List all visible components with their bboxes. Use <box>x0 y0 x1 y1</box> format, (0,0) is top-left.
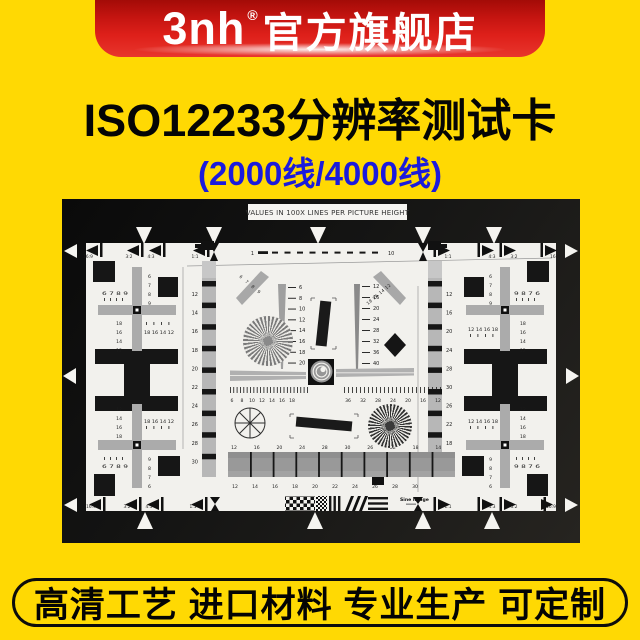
svg-text:1: 1 <box>251 251 254 257</box>
svg-text:32: 32 <box>373 339 379 345</box>
product-subtitle: (2000线/4000线) <box>0 147 640 195</box>
svg-text:3:2: 3:2 <box>126 254 133 260</box>
svg-text:24: 24 <box>373 317 379 323</box>
svg-text:6: 6 <box>231 398 234 404</box>
svg-text:14: 14 <box>252 484 258 490</box>
svg-text:28: 28 <box>322 445 328 451</box>
iso12233-test-chart: VALUES IN 100X LINES PER PICTURE HEIGHT … <box>62 199 580 543</box>
svg-text:6: 6 <box>299 285 302 291</box>
svg-text:16: 16 <box>299 339 305 345</box>
svg-text:18: 18 <box>192 348 198 354</box>
svg-text:18: 18 <box>413 445 419 451</box>
svg-text:6: 6 <box>489 484 492 490</box>
svg-text:18: 18 <box>289 398 295 404</box>
svg-text:8: 8 <box>299 296 302 302</box>
siemens-star-dark <box>368 404 412 448</box>
svg-text:22: 22 <box>332 484 338 490</box>
svg-text:12: 12 <box>299 317 305 323</box>
svg-text:30: 30 <box>345 445 351 451</box>
svg-text:8: 8 <box>489 292 492 298</box>
svg-text:8: 8 <box>148 292 151 298</box>
product-image-page: { "header": { "brand": "3nh", "registere… <box>0 0 640 640</box>
svg-text:12 14 16 18: 12 14 16 18 <box>468 327 498 333</box>
svg-text:10: 10 <box>388 251 394 257</box>
svg-text:14: 14 <box>116 416 122 422</box>
svg-text:14: 14 <box>299 328 305 334</box>
svg-text:16: 16 <box>373 295 379 301</box>
svg-text:40: 40 <box>373 361 379 367</box>
svg-text:30: 30 <box>446 385 452 391</box>
svg-text:12: 12 <box>520 348 526 354</box>
svg-text:20: 20 <box>373 306 379 312</box>
svg-text:12: 12 <box>116 348 122 354</box>
svg-text:16: 16 <box>520 425 526 431</box>
svg-text:16: 16 <box>116 425 122 431</box>
svg-text:22: 22 <box>446 422 452 428</box>
chart-heading: VALUES IN 100X LINES PER PICTURE HEIGHT <box>246 204 410 220</box>
svg-text:20: 20 <box>312 484 318 490</box>
svg-text:1:1: 1:1 <box>445 254 452 260</box>
svg-text:6: 6 <box>148 484 151 490</box>
svg-text:VALUES IN 100X LINES PER PICTU: VALUES IN 100X LINES PER PICTURE HEIGHT <box>246 209 410 217</box>
svg-text:10: 10 <box>249 398 255 404</box>
siemens-star-light <box>243 316 293 366</box>
svg-text:26: 26 <box>446 404 452 410</box>
svg-text:36: 36 <box>373 350 379 356</box>
svg-text:12: 12 <box>232 484 238 490</box>
svg-text:24: 24 <box>192 404 198 410</box>
svg-text:7: 7 <box>489 283 492 289</box>
svg-text:22: 22 <box>192 385 198 391</box>
svg-text:16: 16 <box>116 330 122 336</box>
svg-text:36: 36 <box>345 398 351 404</box>
registered-trademark-icon: ® <box>247 0 257 23</box>
svg-text:14: 14 <box>520 416 526 422</box>
svg-text:12 14 16 18: 12 14 16 18 <box>468 419 498 425</box>
svg-text:32: 32 <box>360 398 366 404</box>
svg-text:12: 12 <box>373 284 379 290</box>
svg-text:12: 12 <box>231 445 237 451</box>
svg-text:9: 9 <box>148 457 151 463</box>
svg-text:28: 28 <box>373 328 379 334</box>
svg-text:18: 18 <box>116 321 122 327</box>
svg-text:18 16 14 12: 18 16 14 12 <box>144 330 174 336</box>
svg-text:14: 14 <box>192 311 198 317</box>
svg-text:30: 30 <box>192 459 198 465</box>
svg-text:8: 8 <box>241 398 244 404</box>
svg-text:4:3: 4:3 <box>148 254 155 260</box>
svg-text:28: 28 <box>375 398 381 404</box>
spoked-wheel <box>235 408 265 438</box>
svg-text:6 7 8 9: 6 7 8 9 <box>102 464 128 470</box>
store-banner: 3nh ® 官方旗舰店 <box>95 0 545 57</box>
test-chart-graphic: VALUES IN 100X LINES PER PICTURE HEIGHT … <box>62 199 580 543</box>
svg-text:24: 24 <box>446 348 452 354</box>
slogan-banner: 高清工艺 进口材料 专业生产 可定制 <box>12 578 628 627</box>
svg-text:14: 14 <box>116 339 122 345</box>
svg-text:12: 12 <box>435 398 441 404</box>
svg-text:9: 9 <box>489 457 492 463</box>
svg-text:1:1: 1:1 <box>192 254 199 260</box>
svg-text:18: 18 <box>520 434 526 440</box>
svg-text:10: 10 <box>299 307 305 313</box>
center-focus-target <box>308 359 334 385</box>
svg-text:16:9: 16:9 <box>83 254 93 260</box>
svg-text:6 7 8 9: 6 7 8 9 <box>102 291 128 297</box>
svg-text:9: 9 <box>148 301 151 307</box>
svg-text:18: 18 <box>292 484 298 490</box>
svg-text:16: 16 <box>192 329 198 335</box>
svg-text:26: 26 <box>192 422 198 428</box>
svg-text:16: 16 <box>254 445 260 451</box>
svg-text:28: 28 <box>446 366 452 372</box>
svg-text:26: 26 <box>372 484 378 490</box>
product-title: ISO12233分辨率测试卡 <box>0 84 640 149</box>
svg-text:16: 16 <box>279 398 285 404</box>
svg-text:24: 24 <box>352 484 358 490</box>
svg-text:20: 20 <box>299 361 305 367</box>
svg-text:8: 8 <box>489 466 492 472</box>
svg-text:16: 16 <box>272 484 278 490</box>
svg-text:4:3: 4:3 <box>489 254 496 260</box>
svg-text:18: 18 <box>446 441 452 447</box>
svg-text:18: 18 <box>299 350 305 356</box>
svg-text:6: 6 <box>489 274 492 280</box>
svg-text:12: 12 <box>116 407 122 413</box>
svg-text:18: 18 <box>520 321 526 327</box>
svg-text:20: 20 <box>405 398 411 404</box>
svg-text:18: 18 <box>116 434 122 440</box>
svg-text:3:2: 3:2 <box>511 254 518 260</box>
svg-text:6: 6 <box>148 274 151 280</box>
svg-text:26: 26 <box>367 445 373 451</box>
svg-text:9: 9 <box>489 301 492 307</box>
svg-text:16:9: 16:9 <box>550 254 560 260</box>
svg-text:12: 12 <box>259 398 265 404</box>
svg-text:12: 12 <box>446 292 452 298</box>
svg-text:14: 14 <box>435 445 441 451</box>
black-nub <box>372 477 384 485</box>
svg-text:28: 28 <box>392 484 398 490</box>
svg-text:20: 20 <box>192 366 198 372</box>
svg-text:7: 7 <box>148 283 151 289</box>
svg-text:7: 7 <box>148 475 151 481</box>
svg-text:14: 14 <box>269 398 275 404</box>
svg-text:16: 16 <box>446 311 452 317</box>
svg-text:18 16 14 12: 18 16 14 12 <box>144 419 174 425</box>
svg-text:16: 16 <box>520 330 526 336</box>
svg-text:24: 24 <box>299 445 305 451</box>
svg-text:7: 7 <box>489 475 492 481</box>
svg-text:9 8 7 6: 9 8 7 6 <box>514 464 540 470</box>
svg-text:8: 8 <box>148 466 151 472</box>
svg-text:20: 20 <box>446 329 452 335</box>
brand-logo: 3nh <box>162 3 245 55</box>
store-name: 官方旗舰店 <box>263 0 478 59</box>
svg-text:12: 12 <box>192 292 198 298</box>
svg-text:12: 12 <box>520 407 526 413</box>
svg-text:30: 30 <box>412 484 418 490</box>
svg-text:14: 14 <box>520 339 526 345</box>
svg-text:16: 16 <box>420 398 426 404</box>
svg-text:9 8 7 6: 9 8 7 6 <box>514 291 540 297</box>
svg-text:20: 20 <box>276 445 282 451</box>
svg-text:28: 28 <box>192 441 198 447</box>
